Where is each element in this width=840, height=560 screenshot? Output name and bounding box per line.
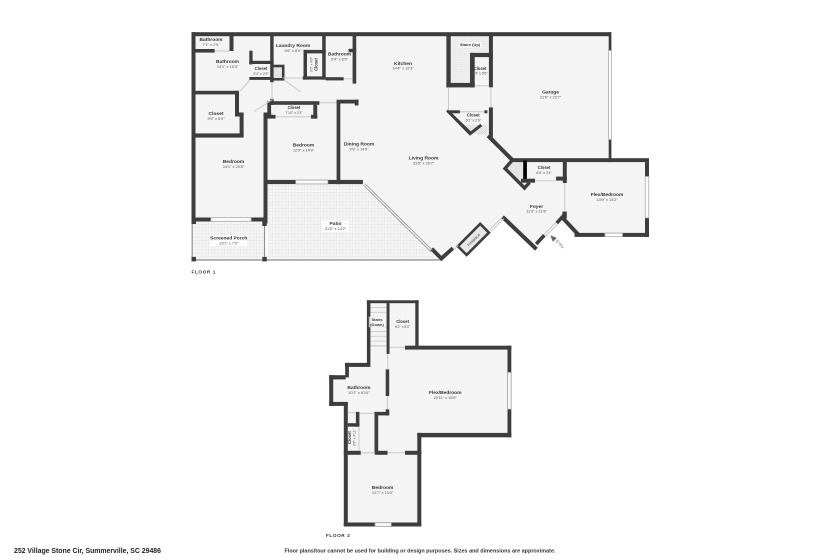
svg-text:9'9" x 8'9": 9'9" x 8'9" <box>207 116 225 121</box>
svg-text:6'6" x 3'4": 6'6" x 3'4" <box>536 171 552 175</box>
svg-text:3'3" x 4'9": 3'3" x 4'9" <box>310 56 314 72</box>
svg-text:Stairs (Up): Stairs (Up) <box>460 42 481 47</box>
svg-text:12'9" x 14'9": 12'9" x 14'9" <box>293 147 315 152</box>
svg-text:6'2" x 2'9": 6'2" x 2'9" <box>466 118 482 122</box>
svg-text:12'7" x 13'0": 12'7" x 13'0" <box>372 490 394 495</box>
svg-text:252 Village Stone Cir, Summerv: 252 Village Stone Cir, Summerville, SC 2… <box>14 548 161 555</box>
svg-text:2'9" x 4'11": 2'9" x 4'11" <box>353 428 357 446</box>
svg-text:7'1" x 2'9": 7'1" x 2'9" <box>202 42 220 47</box>
svg-text:Closet: Closet <box>474 66 487 71</box>
svg-text:21'6" x 22'7": 21'6" x 22'7" <box>540 95 562 100</box>
svg-text:13'9" x 13'2": 13'9" x 13'2" <box>596 197 618 202</box>
svg-text:13'1" x 7'5": 13'1" x 7'5" <box>219 241 239 246</box>
svg-text:14'1" x 10'3": 14'1" x 10'3" <box>217 64 239 69</box>
svg-text:14'4" x 12'3": 14'4" x 12'3" <box>392 66 414 71</box>
svg-text:31'6" x 14'2": 31'6" x 14'2" <box>325 226 347 231</box>
svg-text:Closet: Closet <box>467 113 480 118</box>
svg-text:5'9" x 8'9": 5'9" x 8'9" <box>331 56 349 61</box>
svg-text:Closet: Closet <box>538 165 551 170</box>
svg-text:(Down): (Down) <box>370 322 384 327</box>
svg-text:FLOOR 2: FLOOR 2 <box>326 533 351 538</box>
svg-text:Closet: Closet <box>347 431 352 444</box>
svg-text:5'2" x 8'0": 5'2" x 8'0" <box>395 325 411 329</box>
svg-text:3'3" x 5'6": 3'3" x 5'6" <box>472 72 488 76</box>
svg-text:Closet: Closet <box>288 105 301 110</box>
svg-text:Closet: Closet <box>396 319 409 324</box>
svg-text:9'6" x 8'0": 9'6" x 8'0" <box>284 48 302 53</box>
svg-text:Entry: Entry <box>555 239 566 250</box>
svg-text:11'3" x 11'8": 11'3" x 11'8" <box>526 209 547 214</box>
svg-text:Closet: Closet <box>255 66 268 71</box>
svg-text:Closet: Closet <box>314 58 319 71</box>
svg-text:33'5" x 26'7": 33'5" x 26'7" <box>413 161 435 166</box>
svg-text:10'2" x 8'10": 10'2" x 8'10" <box>348 390 370 395</box>
svg-text:3'4" x 2'9": 3'4" x 2'9" <box>253 72 269 76</box>
svg-text:9'6" x 14'9": 9'6" x 14'9" <box>349 146 369 151</box>
svg-text:Floor plans/tour cannot be use: Floor plans/tour cannot be used for buil… <box>284 549 555 555</box>
svg-text:FLOOR 1: FLOOR 1 <box>192 270 217 275</box>
svg-text:7'10" x 2'3": 7'10" x 2'3" <box>285 111 303 115</box>
svg-text:14'1" x 20'8": 14'1" x 20'8" <box>223 164 245 169</box>
svg-text:23'11" x 16'9": 23'11" x 16'9" <box>434 395 458 400</box>
